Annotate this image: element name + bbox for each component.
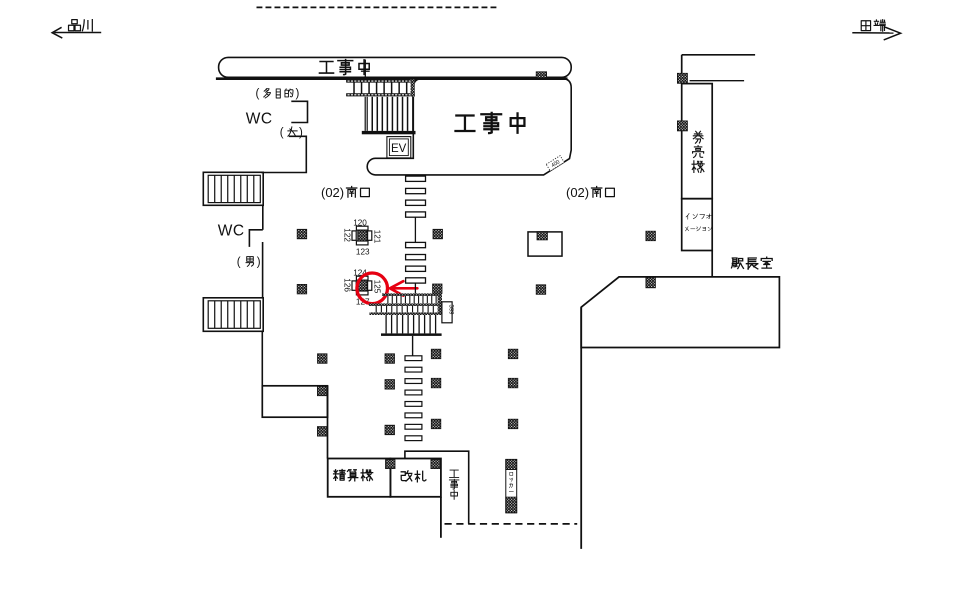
svg-text:(02): (02) <box>566 185 589 200</box>
svg-text:399: 399 <box>448 305 454 316</box>
svg-text:WC: WC <box>218 222 245 239</box>
svg-text:EV: EV <box>391 143 407 155</box>
svg-text:(: ( <box>280 127 284 139</box>
svg-text:125: 125 <box>372 280 381 294</box>
svg-text:(: ( <box>237 256 241 268</box>
svg-text:126: 126 <box>343 278 352 292</box>
svg-text:(02): (02) <box>321 185 344 200</box>
svg-text:121: 121 <box>372 230 381 244</box>
svg-text:(: ( <box>256 88 260 100</box>
svg-text:120: 120 <box>353 218 367 227</box>
svg-text:WC: WC <box>246 110 273 127</box>
svg-text:123: 123 <box>356 248 370 257</box>
svg-text:): ) <box>296 88 300 100</box>
svg-text:122: 122 <box>343 228 352 242</box>
svg-text:): ) <box>257 256 261 268</box>
